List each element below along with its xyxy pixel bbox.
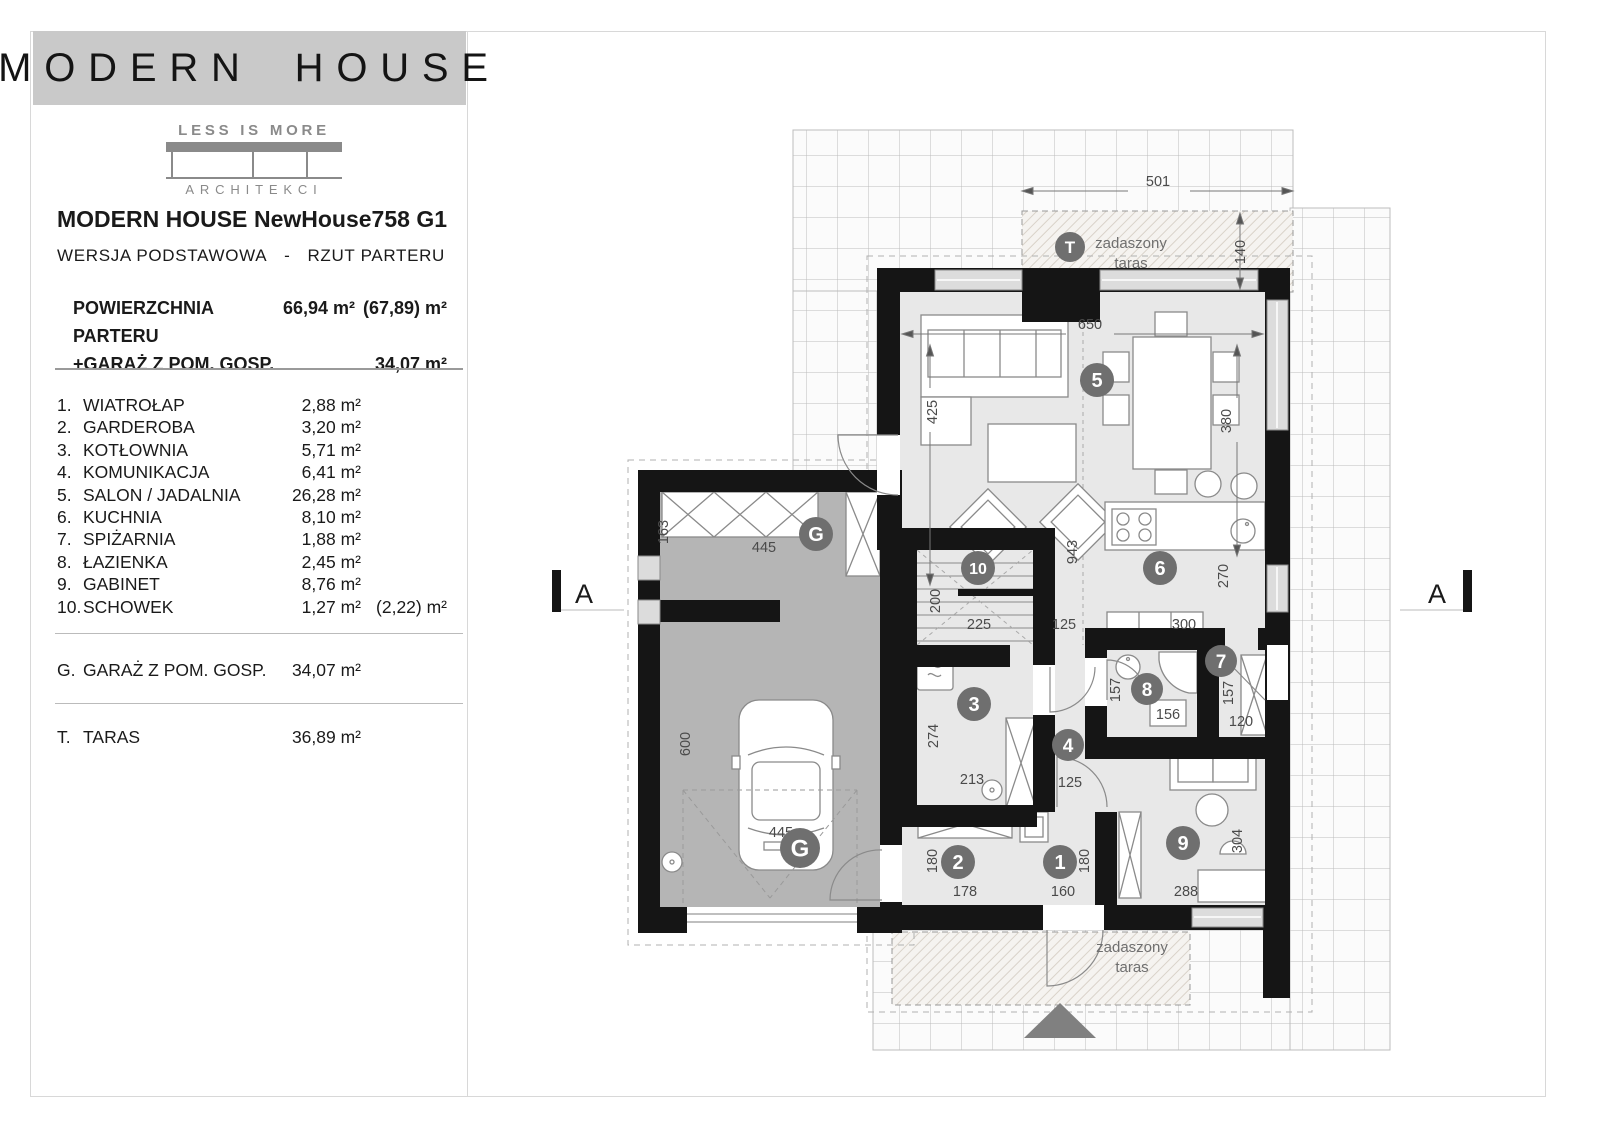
dimension-label: 225 <box>967 617 991 633</box>
terrace-label: taras <box>1115 959 1148 976</box>
room-number: 10 <box>969 561 987 578</box>
dimension-label: 380 <box>1219 409 1235 433</box>
room-number: G <box>808 524 824 546</box>
dimension-label: 445 <box>752 540 776 556</box>
room-number: 1 <box>1054 852 1065 874</box>
dimension-label: 270 <box>1216 564 1232 588</box>
dimension-label: 160 <box>1051 884 1075 900</box>
window <box>638 556 660 580</box>
west-wall <box>877 268 900 435</box>
room-number: 2 <box>952 852 963 874</box>
coffee-table <box>988 424 1076 482</box>
side-table <box>1196 794 1228 826</box>
desk <box>1198 870 1272 902</box>
section-letter: A <box>575 579 593 609</box>
room-number: 5 <box>1091 370 1102 392</box>
plant <box>1195 471 1221 497</box>
dimension-label: 180 <box>1077 849 1093 873</box>
dimension-label: 200 <box>928 589 944 613</box>
terrace-label: taras <box>1114 255 1147 272</box>
dimension-label: 125 <box>1052 617 1076 633</box>
dimension-label: 288 <box>1174 884 1198 900</box>
dimension-label: 157 <box>1221 681 1237 705</box>
dimension-label: 425 <box>925 400 941 424</box>
floorplan-page: { "brand": { "banner": "MODERN HOUSE", "… <box>0 0 1600 1131</box>
dimension-label: 163 <box>656 520 672 544</box>
dimension-label: 300 <box>1172 617 1196 633</box>
plant <box>1231 473 1257 499</box>
dimension-label: 140 <box>1233 240 1249 264</box>
dimension-label: 501 <box>1146 174 1170 190</box>
dimension-label: 213 <box>960 772 984 788</box>
window <box>638 600 660 624</box>
dimension-label: 157 <box>1108 678 1124 702</box>
room-number: 8 <box>1142 680 1153 701</box>
dimension-label: 943 <box>1065 540 1081 564</box>
dimension-label: 600 <box>678 732 694 756</box>
room-number: 9 <box>1177 833 1188 855</box>
dimension-label: 156 <box>1156 707 1180 723</box>
dimension-label: 274 <box>926 724 942 748</box>
room-number: T <box>1065 238 1076 257</box>
room-number: 7 <box>1216 652 1227 673</box>
section-letter: A <box>1428 579 1446 609</box>
dimension-label: 650 <box>1078 317 1102 333</box>
dimension-label: 304 <box>1230 829 1246 853</box>
dimension-label: 180 <box>925 849 941 873</box>
dimension-label: 120 <box>1229 714 1253 730</box>
room-number: 3 <box>968 694 979 716</box>
dimension-label: 125 <box>1058 775 1082 791</box>
room-number: 4 <box>1063 736 1074 757</box>
dimension-label: 178 <box>953 884 977 900</box>
south-wall <box>902 905 1043 930</box>
room-number: G <box>791 836 810 863</box>
terrace-label: zadaszony <box>1095 235 1167 252</box>
floor-plan: 5011406504253809432701634452002251253001… <box>0 0 1600 1131</box>
terrace-label: zadaszony <box>1096 939 1168 956</box>
room-number: 6 <box>1154 558 1165 580</box>
